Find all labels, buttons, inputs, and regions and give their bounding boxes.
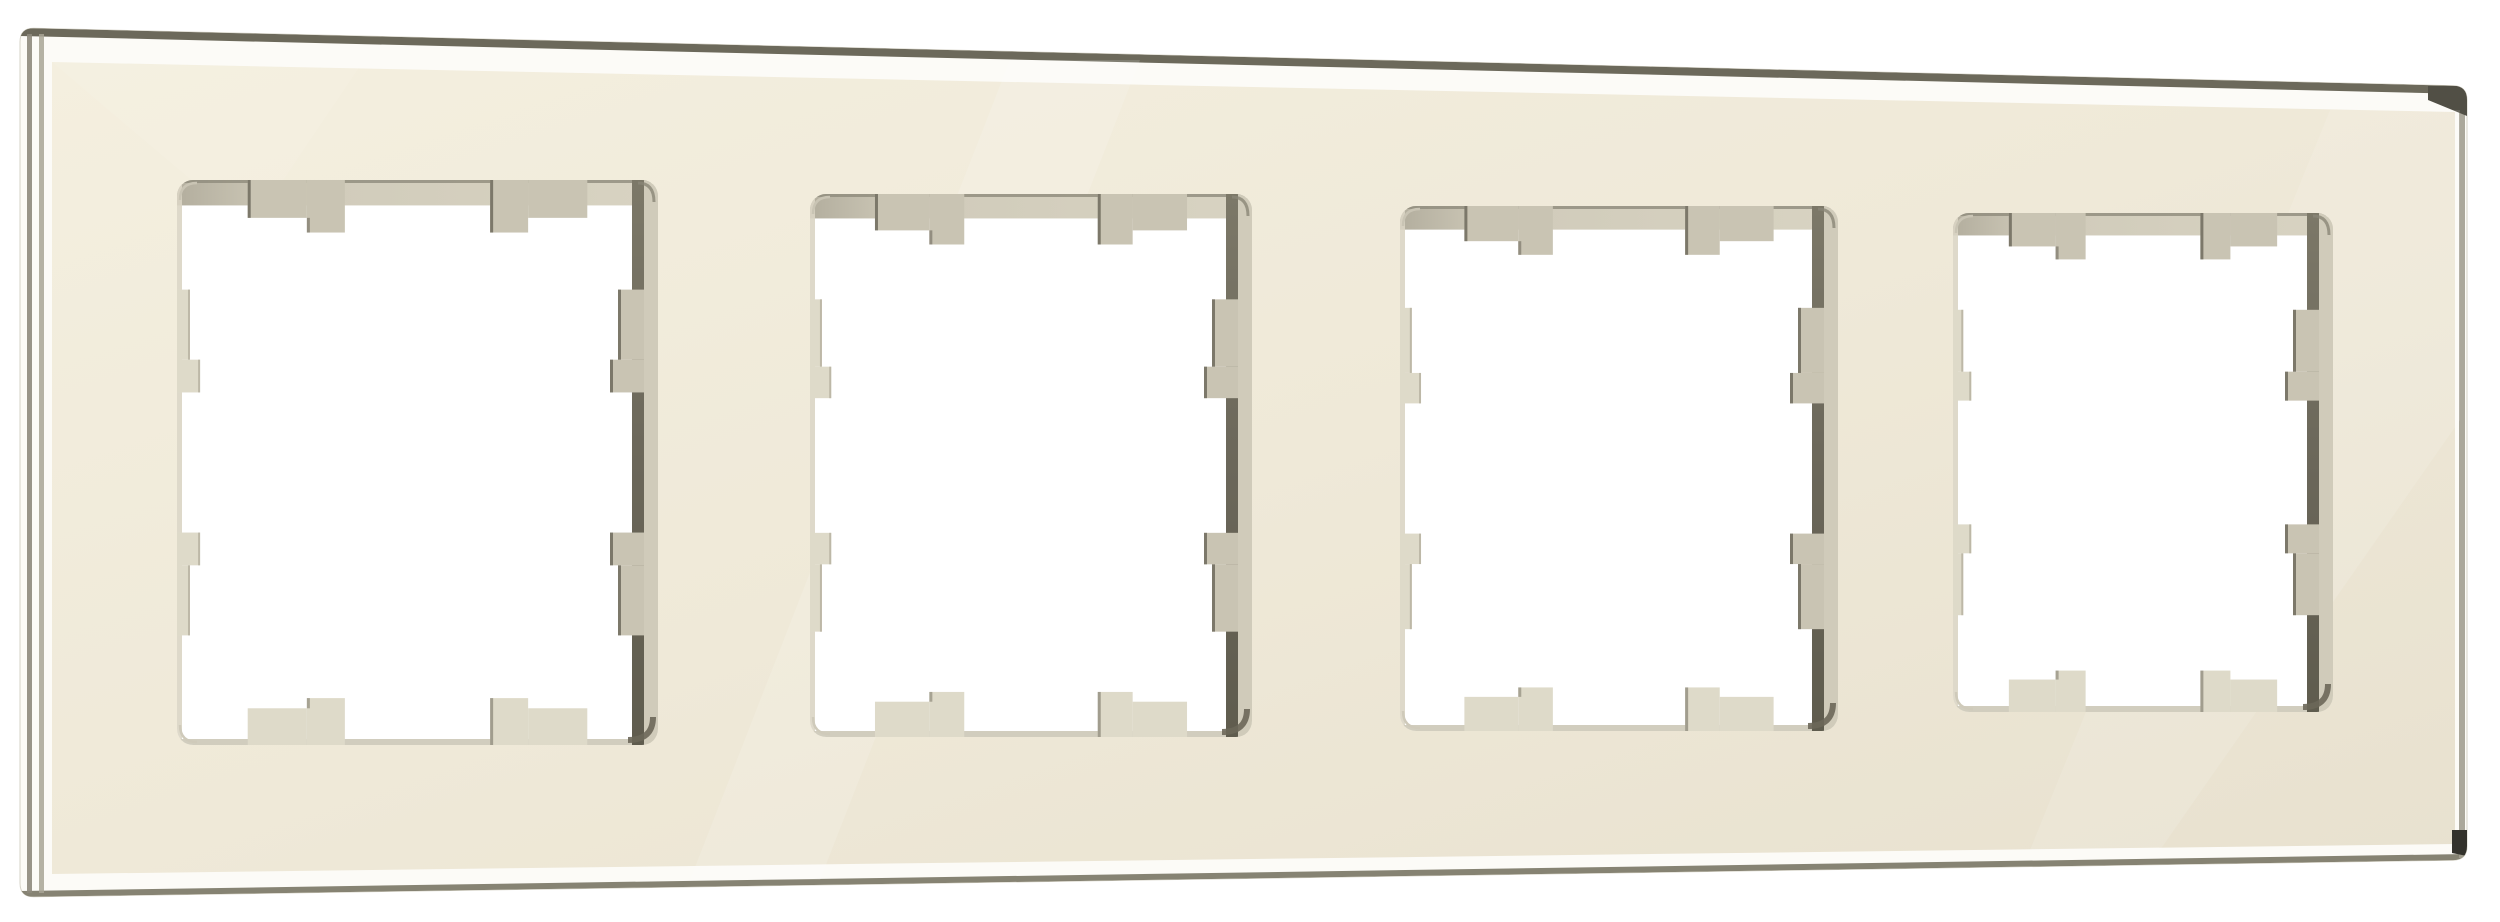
tab-edge (198, 360, 200, 393)
opening-cutout (810, 194, 1252, 737)
opening-left-reveal (177, 180, 182, 745)
tab-edge (1212, 564, 1215, 631)
mounting-tab (875, 702, 929, 737)
mounting-tab (177, 360, 200, 393)
mounting-tab (490, 698, 528, 745)
tab-edge (610, 360, 613, 393)
tab-edge (1204, 367, 1207, 398)
mounting-tab (929, 194, 964, 244)
bottom-right-corner-nub (2452, 830, 2467, 856)
mounting-tab (248, 180, 307, 218)
mounting-tab (307, 698, 345, 745)
mounting-tab (1720, 206, 1774, 241)
tab-edge (1204, 533, 1207, 564)
mounting-tab (610, 360, 644, 393)
mounting-tab (528, 180, 587, 218)
tab-edge (829, 533, 831, 564)
tab-edge (1098, 692, 1101, 737)
mounting-tab (2285, 372, 2319, 401)
tab-edge (1798, 564, 1801, 629)
mounting-tab (610, 533, 644, 566)
frame-opening-1 (177, 180, 658, 745)
tab-edge (2009, 213, 2012, 246)
frame-opening-3 (1400, 206, 1838, 731)
mounting-tab (1518, 206, 1553, 255)
tab-edge (618, 290, 621, 360)
opening-right-bevel (632, 180, 644, 745)
mounting-tab (2285, 524, 2319, 553)
opening-right-outer-strip (644, 180, 658, 745)
tab-edge (2293, 310, 2296, 372)
tab-edge (2056, 246, 2059, 259)
tab-edge (1969, 524, 1971, 553)
tab-edge (2200, 671, 2203, 712)
mounting-tab (618, 290, 644, 360)
mounting-tab (929, 692, 964, 737)
mounting-tab (248, 708, 307, 745)
mounting-tab (2200, 213, 2230, 259)
mounting-tab (2230, 680, 2277, 712)
mounting-tab (810, 367, 831, 398)
mounting-tab (2293, 310, 2319, 372)
tab-edge (1098, 194, 1101, 244)
tab-edge (188, 290, 190, 360)
tab-edge (490, 698, 493, 745)
opening-right-bevel (1812, 206, 1824, 731)
tab-edge (198, 533, 200, 566)
opening-left-reveal (810, 194, 815, 737)
tab-edge (1961, 553, 1963, 615)
mounting-tab (618, 565, 644, 635)
opening-left-reveal (1953, 213, 1958, 712)
mounting-tab (528, 708, 587, 745)
opening-right-bevel (2307, 213, 2319, 712)
tab-edge (610, 533, 613, 566)
product-photo (0, 0, 2500, 922)
opening-left-reveal (1400, 206, 1405, 731)
mounting-tab (2056, 213, 2086, 259)
opening-right-outer-strip (1238, 194, 1252, 737)
tab-edge (1961, 310, 1963, 372)
tab-edge (188, 565, 190, 635)
mounting-tab (810, 533, 831, 564)
tab-edge (829, 367, 831, 398)
opening-cutout (177, 180, 658, 745)
tab-edge (307, 218, 310, 233)
tab-edge (2285, 524, 2288, 553)
opening-right-bevel (1226, 194, 1238, 737)
opening-cutout (1400, 206, 1838, 731)
mounting-tab (1790, 534, 1824, 564)
tab-edge (1419, 534, 1421, 564)
tab-edge (1790, 534, 1793, 564)
tab-edge (1685, 687, 1688, 731)
tab-edge (1464, 206, 1467, 241)
mounting-tab (1400, 534, 1421, 564)
mounting-tab (2200, 671, 2230, 712)
tab-edge (820, 299, 822, 366)
tab-edge (1410, 308, 1412, 373)
tab-edge (2056, 671, 2059, 680)
mounting-tab (1212, 299, 1238, 366)
mounting-tab (1518, 687, 1553, 731)
tab-edge (618, 565, 621, 635)
mounting-tab (1685, 687, 1720, 731)
opening-right-outer-strip (2319, 213, 2333, 712)
tab-edge (307, 698, 310, 708)
tab-edge (1518, 241, 1521, 255)
frame-opening-4 (1953, 213, 2333, 712)
frame-opening-2 (810, 194, 1252, 737)
tab-edge (1410, 564, 1412, 629)
tab-edge (1798, 308, 1801, 373)
tab-edge (1790, 373, 1793, 403)
mounting-tab (875, 194, 929, 230)
mounting-tab (1720, 697, 1774, 731)
tab-edge (820, 564, 822, 631)
left-edge-line (39, 34, 44, 893)
opening-right-outer-strip (1824, 206, 1838, 731)
mounting-tab (177, 533, 200, 566)
mounting-tab (1798, 308, 1824, 373)
tab-edge (2285, 372, 2288, 401)
mounting-tab (1685, 206, 1720, 255)
mounting-tab (1464, 697, 1518, 731)
opening-cutout (1953, 213, 2333, 712)
tab-edge (875, 194, 878, 230)
tab-edge (248, 180, 251, 218)
tab-edge (1212, 299, 1215, 366)
tab-edge (929, 692, 932, 702)
mounting-tab (490, 180, 528, 233)
tab-edge (929, 230, 932, 244)
mounting-tab (1212, 564, 1238, 631)
tab-edge (2293, 553, 2296, 615)
mounting-tab (2009, 680, 2056, 712)
left-edge-line (27, 34, 32, 893)
mounting-tab (1464, 206, 1518, 241)
mounting-tab (2293, 553, 2319, 615)
mounting-tab (1790, 373, 1824, 403)
mounting-tab (1798, 564, 1824, 629)
tab-edge (1518, 687, 1521, 696)
tab-edge (490, 180, 493, 233)
mounting-tab (1204, 533, 1238, 564)
mounting-tab (1204, 367, 1238, 398)
mounting-tab (1953, 524, 1971, 553)
mounting-tab (2056, 671, 2086, 712)
tab-edge (1419, 373, 1421, 403)
mounting-tab (2009, 213, 2056, 246)
mounting-tab (307, 180, 345, 233)
mounting-tab (1133, 194, 1187, 230)
mounting-tab (1098, 692, 1133, 737)
mounting-tab (1400, 373, 1421, 403)
glass-frame-4gang (0, 0, 2500, 922)
tab-edge (2200, 213, 2203, 259)
mounting-tab (1133, 702, 1187, 737)
mounting-tab (2230, 213, 2277, 246)
glass-body (20, 28, 2467, 897)
mounting-tab (1098, 194, 1133, 244)
tab-edge (1685, 206, 1688, 255)
mounting-tab (1953, 372, 1971, 401)
tab-edge (1969, 372, 1971, 401)
